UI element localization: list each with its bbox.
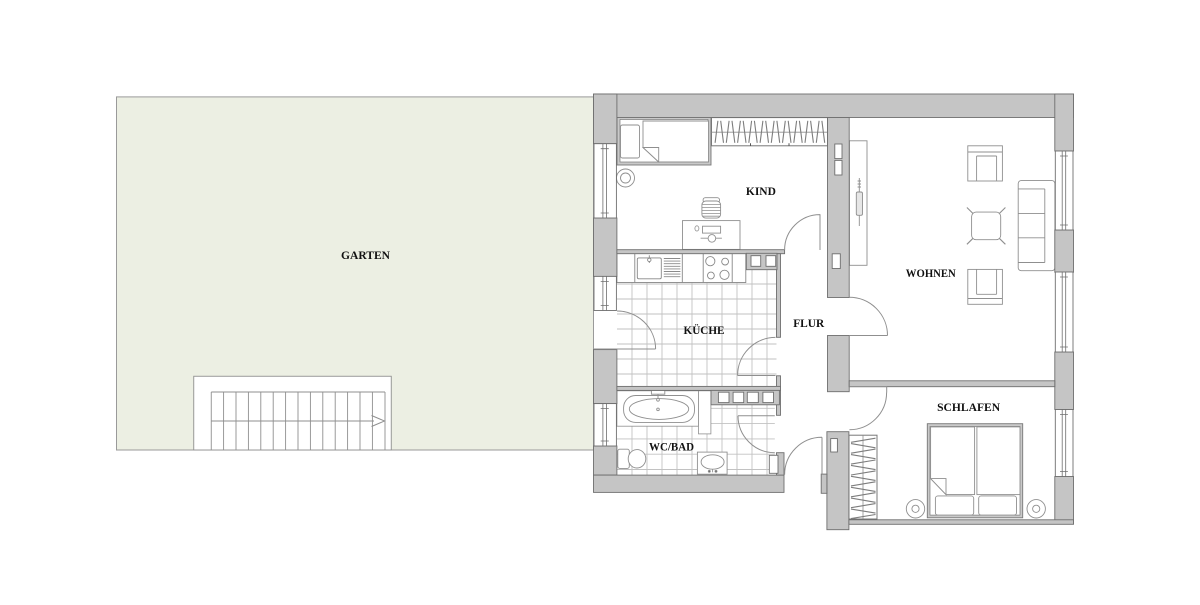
svg-text:FLUR: FLUR bbox=[793, 318, 825, 330]
svg-text:GARTEN: GARTEN bbox=[341, 250, 391, 262]
svg-text:WOHNEN: WOHNEN bbox=[906, 268, 957, 280]
svg-text:KÜCHE: KÜCHE bbox=[684, 323, 725, 337]
svg-text:WC/BAD: WC/BAD bbox=[649, 442, 694, 454]
svg-text:KIND: KIND bbox=[746, 186, 776, 198]
svg-text:SCHLAFEN: SCHLAFEN bbox=[937, 402, 1001, 414]
